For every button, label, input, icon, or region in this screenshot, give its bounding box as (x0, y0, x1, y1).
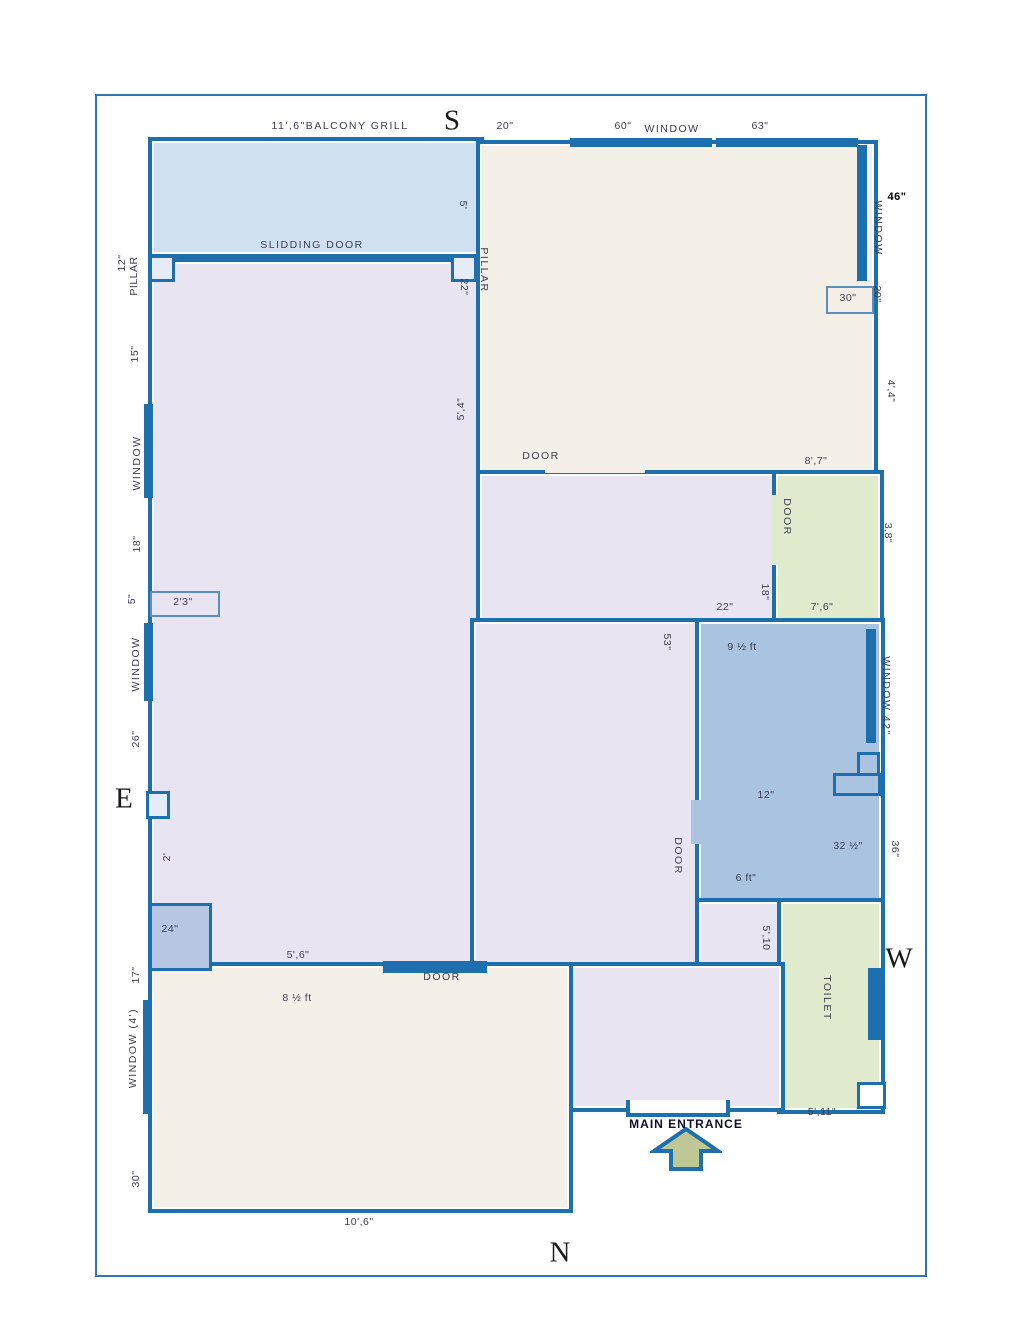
pillar-left-square (149, 255, 175, 282)
toilet-corner-box (857, 1082, 886, 1109)
dim-12in-pillar: 12" (116, 255, 128, 272)
box-24in (149, 903, 212, 971)
dim-60in: 60" (615, 120, 632, 132)
dim-20in-right: 20" (871, 286, 883, 303)
window-bar-left-2 (144, 623, 153, 701)
window-left1-label: WINDOW (131, 435, 143, 490)
dim-5in-left: 5" (126, 594, 138, 605)
door-mid-label: DOOR (672, 837, 684, 875)
sliding-door-label: SLIDDING DOOR (260, 239, 364, 251)
door-bottom-label: DOOR (423, 971, 461, 983)
room-bottom-center (555, 962, 785, 1112)
dim-2ft3: 2'3" (173, 596, 192, 608)
room-middle (476, 470, 782, 626)
dim-22in-pillar: 22" (458, 279, 470, 296)
window-right-top-label: WINDOW (872, 200, 884, 255)
balcony-grill-label: 11',6"BALCONY GRILL (271, 120, 408, 132)
dim-18in-left: 18" (131, 536, 143, 553)
door-green-label: DOOR (781, 498, 793, 536)
wall-notch-east (146, 791, 170, 819)
dim-32in: 32 ½" (833, 840, 863, 852)
dim-18in-mid: 18" (759, 584, 771, 601)
dim-63in: 63" (752, 120, 769, 132)
dim-20in-top: 20" (497, 120, 514, 132)
dim-30in-box: 30" (840, 292, 857, 304)
dim-15in: 15" (129, 346, 141, 363)
main-entrance-label: MAIN ENTRANCE (629, 1117, 743, 1131)
entrance-arrow-icon (650, 1127, 722, 1176)
dim-5ft11: 5',11" (808, 1106, 836, 1118)
dim-4ft4: 4',4" (885, 380, 897, 403)
dim-2ft: 2' (161, 853, 173, 862)
compass-north: N (550, 1237, 571, 1270)
dim-22in-mid: 22" (717, 601, 734, 613)
dim-12in-room: 12" (758, 789, 775, 801)
dim-8half-ft: 8 ½ ft (282, 992, 311, 1004)
dim-53in: 53" (661, 634, 673, 651)
window-left2-label: WINDOW (130, 636, 142, 691)
window-top-label: WINDOW (644, 123, 699, 135)
dim-5ft6: 5',6" (287, 949, 310, 961)
entrance-step (626, 1100, 730, 1117)
compass-east: E (115, 783, 133, 816)
dim-26in: 26" (130, 731, 142, 748)
door-opening-top (545, 461, 645, 473)
dim-36in: 36" (889, 841, 901, 858)
compass-south: S (444, 105, 460, 138)
window-bar-left-1 (144, 404, 153, 498)
dim-3ft8: 3,8" (882, 523, 894, 543)
dim-17in: 17" (130, 967, 142, 984)
wall-notch-blue-2 (833, 773, 881, 796)
pillar-left-label: PILLAR (128, 256, 140, 295)
window-42-label: WINDOW 42" (880, 656, 892, 735)
room-top-right (476, 140, 878, 478)
room-bottom-left (148, 962, 573, 1213)
window-bar-blue-room (866, 629, 876, 743)
toilet-label: TOILET (821, 975, 833, 1021)
window-bar-right-top (857, 145, 867, 281)
dim-30in-left: 30" (130, 1171, 142, 1188)
door-opening-blue (691, 800, 703, 844)
room-center (470, 618, 706, 976)
dim-24in: 24" (162, 923, 179, 935)
dim-5ft4: 5',4" (455, 398, 467, 421)
compass-west: W (885, 943, 912, 976)
window-bar-toilet (868, 968, 881, 1040)
floor-plan-page: S E W N 11',6"BALCONY GRILL 20" 60" WIND… (0, 0, 1020, 1320)
window-bar-top-2 (716, 138, 858, 147)
dim-10ft6: 10',6" (344, 1216, 373, 1228)
dim-8ft7: 8',7" (805, 455, 828, 467)
door-top-label: DOOR (522, 450, 560, 462)
window-4ft-label: WINDOW (4') (127, 1008, 139, 1088)
dim-9half-ft: 9 ½ ft (727, 641, 756, 653)
dim-6ft: 6 ft" (736, 872, 757, 884)
window-bar-left-bottom (143, 1000, 152, 1114)
dim-5ft10: 5',10 (760, 926, 772, 951)
pillar-center-label: PILLAR (478, 247, 490, 292)
dim-7ft6: 7',6" (811, 601, 834, 613)
window-bar-top-1 (570, 138, 712, 147)
dim-46in: 46" (888, 191, 907, 203)
dim-5ft-balcony: 5' (457, 201, 469, 210)
